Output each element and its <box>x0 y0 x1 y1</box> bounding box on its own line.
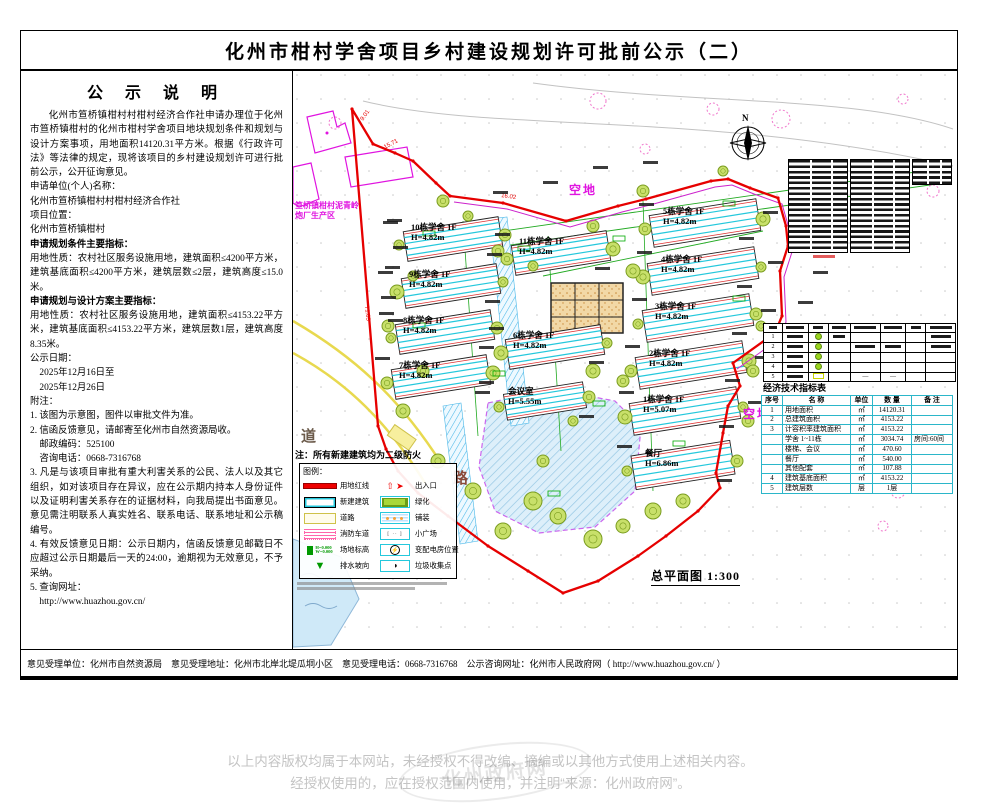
notice-line: 2. 信函反馈意见，请邮寄至化州市自然资源局收。 <box>30 424 283 438</box>
indicator-cell <box>912 444 953 454</box>
plant-cell <box>926 332 956 342</box>
plant-cell: 3 <box>764 352 783 362</box>
road-legend-icon <box>303 513 337 524</box>
indicator-cell: 楼梯、会议 <box>782 444 850 454</box>
notice-line: http://www.huazhou.gov.cn/ <box>30 595 283 609</box>
indicator-cell: 层 <box>850 484 872 494</box>
notice-line: 公示日期： <box>30 352 283 366</box>
legend-label: 用地红线 <box>340 481 369 491</box>
plant-cell <box>808 352 828 362</box>
legend-label: 小广场 <box>415 529 437 539</box>
plant-cell: 1 <box>764 332 783 342</box>
plant-table: 12345—— <box>763 323 956 382</box>
redline-legend-icon <box>303 481 337 492</box>
indicator-header: 名 称 <box>782 396 850 406</box>
plant-cell: — <box>880 372 906 381</box>
plant-cell <box>906 342 926 352</box>
legend-label: 新建建筑 <box>340 497 369 507</box>
plant-cell <box>828 352 850 362</box>
plant-cell: 5 <box>764 372 783 381</box>
indicator-cell <box>762 435 783 445</box>
plant-cell <box>828 362 850 372</box>
indicator-cell: 建筑层数 <box>782 484 850 494</box>
legend-right-column: ⇧ ➤出入口绿化铺装[ ·· ]小广场⚡变配电房位置◑垃圾收集点 <box>378 478 453 574</box>
legend-label: 变配电房位置 <box>415 545 459 555</box>
building-legend-icon <box>303 497 337 508</box>
legend-label: 消防车道 <box>340 529 369 539</box>
indicator-cell: 餐厅 <box>782 454 850 464</box>
indicator-cell: ㎡ <box>850 454 872 464</box>
building-label: 10栋学舍 1FH=4.82m <box>411 223 457 243</box>
plant-cell <box>851 362 881 372</box>
notice-line: 用地性质：农村社区服务设施用地，建筑面积≤4153.22平方米，建筑基底面积≤4… <box>30 309 283 352</box>
plant-cell <box>926 372 956 381</box>
indicator-cell: ㎡ <box>850 464 872 474</box>
indicator-cell: 学舍 1~11栋 <box>782 435 850 445</box>
indicator-cell <box>912 425 953 435</box>
indicator-row: 3计容积率建筑面积㎡4153.22 <box>762 425 953 435</box>
legend-item-entrance: ⇧ ➤出入口 <box>378 478 453 494</box>
building-height: H=4.82m <box>655 312 696 322</box>
indicator-cell: 1层 <box>872 484 911 494</box>
legend-label: 铺装 <box>415 513 430 523</box>
plant-row: 4 <box>764 362 956 372</box>
notice-line: 申请规划与设计方案主要指标： <box>30 295 283 309</box>
plant-cell <box>808 342 828 352</box>
slope-legend-icon: ▼ <box>303 561 337 572</box>
indicator-header: 序号 <box>762 396 783 406</box>
adjacent-area-label: 笪桥镇柑村泥青岭 炮厂生产区 <box>295 201 359 221</box>
indicator-cell <box>762 454 783 464</box>
building-height: H=5.55m <box>508 397 541 407</box>
legend-item-plaza: [ ·· ]小广场 <box>378 526 453 542</box>
plant-cell <box>880 342 906 352</box>
indicator-cell: 4153.22 <box>872 474 911 484</box>
legend-item-trash: ◑垃圾收集点 <box>378 558 453 574</box>
plant-cell <box>828 342 850 352</box>
building-label: 3栋学舍 1FH=4.82m <box>655 302 696 322</box>
indicator-header: 单位 <box>850 396 872 406</box>
indicator-header: 数 量 <box>872 396 911 406</box>
open-land-label-1: 空地 <box>569 181 597 198</box>
notice-line: 2025年12月26日 <box>30 381 283 395</box>
plant-row: 1 <box>764 332 956 342</box>
adjacent-area-line2: 炮厂生产区 <box>295 211 359 221</box>
indicator-row: 4建筑基底面积㎡4153.22 <box>762 474 953 484</box>
paving-legend-icon <box>378 513 412 524</box>
indicator-row: 1用地面积㎡14120.31 <box>762 405 953 415</box>
indicator-cell: 540.00 <box>872 454 911 464</box>
notice-panel: 公 示 说 明 化州市笪桥镇柑村村柑村经济合作社申请办理位于化州市笪桥镇柑村的化… <box>21 71 293 649</box>
building-label: 会议室H=5.55m <box>508 387 541 407</box>
site-plan-panel: 9.0115.7116.0271.63 N 空地 空地 笪桥镇柑村泥青岭 炮厂生… <box>293 71 956 649</box>
plant-header-cell <box>764 324 783 333</box>
indicator-table-title: 经济技术指标表 <box>763 381 953 394</box>
building-label: 11栋学舍 1FH=4.82m <box>519 237 564 257</box>
plant-row: 2 <box>764 342 956 352</box>
plaza-legend-icon: [ ·· ] <box>378 529 412 540</box>
indicator-cell: 4153.22 <box>872 425 911 435</box>
power-legend-icon: ⚡ <box>378 545 412 556</box>
notice-line: 1. 该图为示意图，图件以审批文件为准。 <box>30 409 283 423</box>
notice-line: 化州市笪桥镇柑村 <box>30 223 283 237</box>
indicator-cell: 4 <box>762 474 783 484</box>
indicator-cell: ㎡ <box>850 435 872 445</box>
notice-line: 咨询电话：0668-7316768 <box>30 452 283 466</box>
indicator-cell: 2 <box>762 415 783 425</box>
indicator-cell: 其他配套 <box>782 464 850 474</box>
legend-label: 场地标高 <box>340 545 369 555</box>
indicator-cell: ㎡ <box>850 415 872 425</box>
coordinate-table-block-2 <box>850 159 910 253</box>
notice-line: 3. 凡是与该项目审批有重大利害关系的公民、法人以及其它组织，如对该项目存在异议… <box>30 466 283 537</box>
indicator-cell: 建筑基底面积 <box>782 474 850 484</box>
indicator-cell: 房间:60间 <box>912 435 953 445</box>
indicator-cell <box>912 415 953 425</box>
notice-line: 2025年12月16日至 <box>30 366 283 380</box>
notice-line: 附注： <box>30 395 283 409</box>
plant-cell <box>906 332 926 342</box>
plant-header-cell <box>783 324 809 333</box>
site-watermark: 化州政府网 <box>395 732 594 811</box>
indicator-header: 备 注 <box>912 396 953 406</box>
plant-cell <box>808 332 828 342</box>
notice-line: 用地性质：农村社区服务设施用地，建筑面积≤4200平方米，建筑基底面积≤4200… <box>30 252 283 295</box>
building-label: 7栋学舍 1FH=4.82m <box>399 361 440 381</box>
building-height: H=4.82m <box>519 247 564 257</box>
plant-header-cell <box>828 324 850 333</box>
plant-cell <box>880 362 906 372</box>
indicator-cell <box>912 484 953 494</box>
trash-legend-icon: ◑ <box>378 561 412 572</box>
indicator-row: 其他配套㎡107.88 <box>762 464 953 474</box>
plant-row: 5—— <box>764 372 956 381</box>
indicator-cell <box>912 474 953 484</box>
elev-legend-icon: H=0.000W=0.000 <box>303 545 337 556</box>
plant-cell <box>783 362 809 372</box>
legend-item-road: 道路 <box>303 510 378 526</box>
legend-item-power: ⚡变配电房位置 <box>378 542 453 558</box>
plant-cell <box>880 332 906 342</box>
plant-cell <box>808 372 828 381</box>
scale-label: 总平面图 1:300 <box>651 567 740 586</box>
plant-cell: — <box>851 372 881 381</box>
indicator-cell: ㎡ <box>850 444 872 454</box>
plant-cell <box>828 372 850 381</box>
indicator-cell: 107.88 <box>872 464 911 474</box>
legend-label: 出入口 <box>415 481 437 491</box>
indicator-cell: ㎡ <box>850 425 872 435</box>
indicator-row: 5建筑层数层1层 <box>762 484 953 494</box>
document-title: 化州市柑村学舍项目乡村建设规划许可批前公示（二） <box>21 31 957 71</box>
notice-line: 化州市笪桥镇柑村村柑村经济合作社 <box>30 195 283 209</box>
building-height: H=4.82m <box>649 359 690 369</box>
notice-line: 申请单位(个人)名称： <box>30 180 283 194</box>
indicator-cell: 4153.22 <box>872 415 911 425</box>
building-label: 4栋学舍 1FH=4.82m <box>661 255 702 275</box>
indicator-cell <box>912 464 953 474</box>
notice-heading: 公 示 说 明 <box>30 79 283 103</box>
indicator-cell <box>912 405 953 415</box>
building-height: H=5.07m <box>643 405 684 415</box>
building-height: H=6.86m <box>645 459 678 469</box>
building-height: H=4.82m <box>399 371 440 381</box>
legend-left-column: 用地红线新建建筑道路消防车道H=0.000W=0.000场地标高▼排水坡向 <box>303 478 378 574</box>
plant-cell <box>906 352 926 362</box>
road-char-1: 道 <box>301 425 316 446</box>
plant-cell <box>926 342 956 352</box>
plant-cell <box>851 352 881 362</box>
indicator-cell: 用地面积 <box>782 405 850 415</box>
building-height: H=4.82m <box>513 341 554 351</box>
plant-header-cell <box>906 324 926 333</box>
building-height: H=4.82m <box>409 280 450 290</box>
notice-line: 申请规划条件主要指标： <box>30 238 283 252</box>
adjacent-area-line1: 笪桥镇柑村泥青岭 <box>295 201 359 211</box>
indicator-cell: 14120.31 <box>872 405 911 415</box>
indicator-cell: 总建筑面积 <box>782 415 850 425</box>
notice-text: 化州市笪桥镇柑村村柑村经济合作社申请办理位于化州市笪桥镇柑村的化州市柑村学舍项目… <box>30 109 283 609</box>
legend-title: 图例： <box>303 466 453 477</box>
indicator-cell <box>912 454 953 464</box>
north-label: N <box>742 113 749 123</box>
legend-item-building: 新建建筑 <box>303 494 378 510</box>
legend-item-redline: 用地红线 <box>303 478 378 494</box>
plant-cell <box>926 352 956 362</box>
building-label: 1栋学舍 1FH=5.07m <box>643 395 684 415</box>
notice-line: 5. 查询网址： <box>30 581 283 595</box>
plant-cell <box>783 342 809 352</box>
indicator-row: 餐厅㎡540.00 <box>762 454 953 464</box>
firelane-legend-icon <box>303 529 337 540</box>
footer-bar: 意见受理单位：化州市自然资源局 意见受理地址：化州市北岸北堤瓜垌小区 意见受理电… <box>21 649 957 676</box>
legend-item-paving: 铺装 <box>378 510 453 526</box>
plant-cell <box>926 362 956 372</box>
indicator-cell: ㎡ <box>850 474 872 484</box>
plant-header-cell <box>808 324 828 333</box>
indicator-cell: 3 <box>762 425 783 435</box>
building-label: 9栋学舍 1FH=4.82m <box>409 270 450 290</box>
notice-line: 邮政编码：525100 <box>30 438 283 452</box>
legend-item-elev: H=0.000W=0.000场地标高 <box>303 542 378 558</box>
building-label: 2栋学舍 1FH=4.82m <box>649 349 690 369</box>
document-body: 公 示 说 明 化州市笪桥镇柑村村柑村经济合作社申请办理位于化州市笪桥镇柑村的化… <box>21 71 957 649</box>
building-label: 餐厅H=6.86m <box>645 449 678 469</box>
plant-cell: 4 <box>764 362 783 372</box>
green-legend-icon <box>378 497 412 508</box>
notice-line: 项目位置： <box>30 209 283 223</box>
plant-row: 3 <box>764 352 956 362</box>
building-height: H=4.82m <box>403 326 444 336</box>
plant-cell <box>851 332 881 342</box>
indicator-row: 楼梯、会议㎡470.60 <box>762 444 953 454</box>
plant-cell <box>783 372 809 381</box>
footer-bar-text: 意见受理单位：化州市自然资源局 意见受理地址：化州市北岸北堤瓜垌小区 意见受理电… <box>27 657 726 670</box>
plant-cell <box>906 362 926 372</box>
indicator-cell: ㎡ <box>850 405 872 415</box>
legend-box: 图例： 用地红线新建建筑道路消防车道H=0.000W=0.000场地标高▼排水坡… <box>299 463 457 579</box>
plant-header-cell <box>880 324 906 333</box>
indicator-cell: 3034.74 <box>872 435 911 445</box>
indicator-row: 学舍 1~11栋㎡3034.74房间:60间 <box>762 435 953 445</box>
legend-label: 道路 <box>340 513 355 523</box>
legend-label: 排水坡向 <box>340 561 369 571</box>
plant-cell <box>851 342 881 352</box>
legend-fine-print <box>297 582 447 592</box>
indicator-cell: 计容积率建筑面积 <box>782 425 850 435</box>
indicator-cell: 5 <box>762 484 783 494</box>
indicator-cell: 1 <box>762 405 783 415</box>
fire-note: 注：所有新建建筑均为二级防火 <box>295 448 421 461</box>
plant-cell <box>783 332 809 342</box>
plant-cell <box>783 352 809 362</box>
plant-header-cell <box>851 324 881 333</box>
plant-cell <box>808 362 828 372</box>
building-label: 8栋学舍 1FH=4.82m <box>403 316 444 336</box>
legend-item-green: 绿化 <box>378 494 453 510</box>
building-height: H=4.82m <box>663 217 704 227</box>
indicator-row: 2总建筑面积㎡4153.22 <box>762 415 953 425</box>
building-height: H=4.82m <box>411 233 457 243</box>
legend-item-firelane: 消防车道 <box>303 526 378 542</box>
legend-item-slope: ▼排水坡向 <box>303 558 378 574</box>
entrance-legend-icon: ⇧ ➤ <box>378 481 412 492</box>
building-label: 6栋学舍 1FH=4.82m <box>513 331 554 351</box>
indicator-cell <box>762 464 783 474</box>
page-root: { "page_title": "化州市柑村学舍项目乡村建设规划许可批前公示（二… <box>0 0 981 798</box>
legend-label: 绿化 <box>415 497 430 507</box>
legend-label: 垃圾收集点 <box>415 561 451 571</box>
coordinate-table-block-1 <box>788 159 848 253</box>
plant-cell <box>880 352 906 362</box>
plant-header-cell <box>926 324 956 333</box>
indicator-table: 经济技术指标表 序号名 称单位数 量备 注 1用地面积㎡14120.312总建筑… <box>761 381 953 494</box>
indicator-cell: 470.60 <box>872 444 911 454</box>
coordinate-table-block-3 <box>912 159 952 185</box>
plant-cell: 2 <box>764 342 783 352</box>
building-label: 5栋学舍 1FH=4.82m <box>663 207 704 227</box>
indicator-cell <box>762 444 783 454</box>
document-frame: 化州市柑村学舍项目乡村建设规划许可批前公示（二） 公 示 说 明 化州市笪桥镇柑… <box>20 30 958 680</box>
notice-line: 4. 有效反馈意见日期：公示日期内，信函反馈意见邮戳日不应超过公示日期最后一天的… <box>30 538 283 581</box>
notice-line: 化州市笪桥镇柑村村柑村经济合作社申请办理位于化州市笪桥镇柑村的化州市柑村学舍项目… <box>30 109 283 180</box>
plant-cell <box>906 372 926 381</box>
building-height: H=4.82m <box>661 265 702 275</box>
plant-cell <box>828 332 850 342</box>
